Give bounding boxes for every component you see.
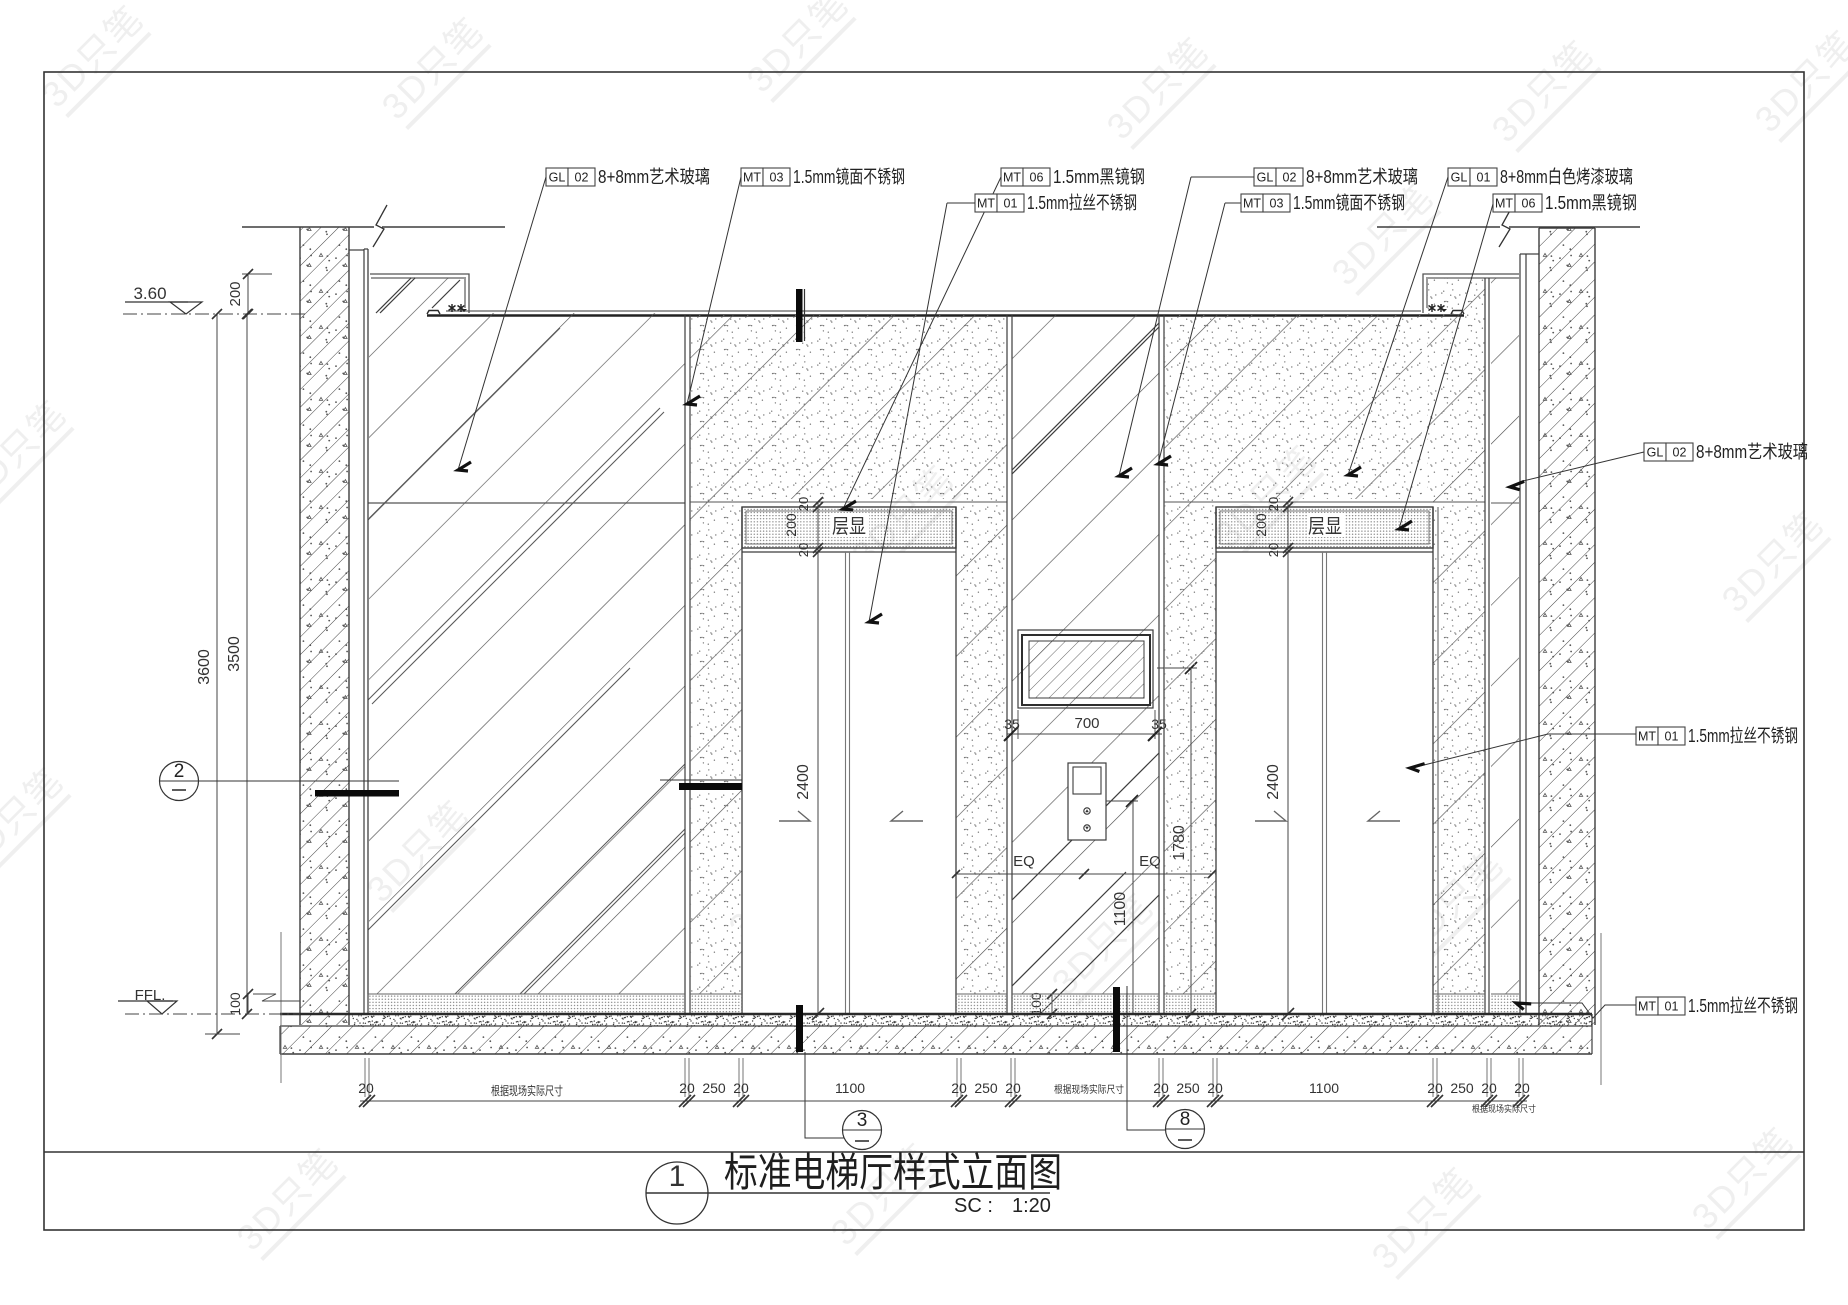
svg-text:3D只笔: 3D只笔 bbox=[1683, 1119, 1801, 1237]
svg-text:3D只笔: 3D只笔 bbox=[33, 0, 151, 115]
svg-text:20: 20 bbox=[1005, 1080, 1021, 1096]
svg-text:MT: MT bbox=[743, 171, 761, 185]
svg-text:3: 3 bbox=[857, 1110, 868, 1131]
svg-text:35: 35 bbox=[1004, 716, 1020, 732]
svg-text:20: 20 bbox=[1266, 543, 1281, 557]
svg-text:根据现场实际尺寸: 根据现场实际尺寸 bbox=[1472, 1103, 1536, 1114]
svg-text:层显: 层显 bbox=[832, 516, 866, 538]
svg-text:2400: 2400 bbox=[1265, 764, 1282, 800]
svg-text:2: 2 bbox=[174, 761, 185, 782]
svg-text:20: 20 bbox=[733, 1080, 749, 1096]
svg-text:250: 250 bbox=[1176, 1080, 1200, 1096]
svg-text:MT: MT bbox=[1638, 730, 1656, 744]
svg-text:3D只笔: 3D只笔 bbox=[373, 9, 491, 127]
svg-text:2400: 2400 bbox=[795, 764, 812, 800]
svg-text:02: 02 bbox=[1283, 171, 1297, 185]
svg-text:01: 01 bbox=[1665, 730, 1679, 744]
svg-text:3.60: 3.60 bbox=[133, 284, 166, 303]
svg-text:1100: 1100 bbox=[1309, 1080, 1339, 1096]
svg-text:1.5mm拉丝不锈钢: 1.5mm拉丝不锈钢 bbox=[1688, 996, 1798, 1016]
svg-text:01: 01 bbox=[1665, 1000, 1679, 1014]
svg-text:1:20: 1:20 bbox=[1012, 1195, 1051, 1217]
svg-text:3D只笔: 3D只笔 bbox=[1483, 32, 1601, 150]
svg-text:GL: GL bbox=[1647, 446, 1664, 460]
svg-text:8: 8 bbox=[1180, 1109, 1191, 1130]
svg-text:8+8mm艺术玻璃: 8+8mm艺术玻璃 bbox=[1306, 167, 1418, 187]
svg-text:1.5mm黑镜钢: 1.5mm黑镜钢 bbox=[1053, 167, 1145, 187]
svg-text:01: 01 bbox=[1477, 171, 1491, 185]
svg-text:200: 200 bbox=[783, 513, 799, 537]
svg-text:GL: GL bbox=[1451, 171, 1468, 185]
svg-text:1.5mm拉丝不锈钢: 1.5mm拉丝不锈钢 bbox=[1027, 193, 1137, 213]
svg-text:06: 06 bbox=[1522, 197, 1536, 211]
svg-text:200: 200 bbox=[1253, 513, 1269, 537]
svg-text:EQ: EQ bbox=[1013, 853, 1035, 870]
svg-text:1.5mm镜面不锈钢: 1.5mm镜面不锈钢 bbox=[1293, 193, 1405, 213]
svg-text:1100: 1100 bbox=[835, 1080, 865, 1096]
svg-text:1.5mm镜面不锈钢: 1.5mm镜面不锈钢 bbox=[793, 167, 905, 187]
svg-text:3D只笔: 3D只笔 bbox=[228, 1140, 346, 1258]
svg-text:GL: GL bbox=[1257, 171, 1274, 185]
svg-text:01: 01 bbox=[1004, 197, 1018, 211]
svg-text:20: 20 bbox=[1481, 1080, 1497, 1096]
svg-text:8+8mm白色烤漆玻璃: 8+8mm白色烤漆玻璃 bbox=[1500, 167, 1633, 187]
svg-text:3D只笔: 3D只笔 bbox=[0, 759, 72, 877]
svg-text:EQ: EQ bbox=[1139, 853, 1161, 870]
svg-text:20: 20 bbox=[1266, 497, 1281, 511]
svg-text:20: 20 bbox=[1153, 1080, 1169, 1096]
svg-text:03: 03 bbox=[1270, 197, 1284, 211]
svg-text:MT: MT bbox=[1243, 197, 1261, 211]
svg-text:MT: MT bbox=[977, 197, 995, 211]
svg-text:20: 20 bbox=[358, 1080, 374, 1096]
svg-text:02: 02 bbox=[1673, 446, 1687, 460]
svg-text:20: 20 bbox=[796, 497, 811, 511]
svg-text:1.5mm拉丝不锈钢: 1.5mm拉丝不锈钢 bbox=[1688, 726, 1798, 746]
svg-text:SC :: SC : bbox=[954, 1195, 993, 1217]
svg-text:1: 1 bbox=[669, 1160, 686, 1193]
svg-text:20: 20 bbox=[796, 543, 811, 557]
svg-text:20: 20 bbox=[1207, 1080, 1223, 1096]
svg-text:3600: 3600 bbox=[196, 649, 213, 685]
svg-text:20: 20 bbox=[679, 1080, 695, 1096]
svg-text:8+8mm艺术玻璃: 8+8mm艺术玻璃 bbox=[1696, 442, 1808, 462]
svg-text:根据现场实际尺寸: 根据现场实际尺寸 bbox=[491, 1083, 563, 1098]
svg-text:03: 03 bbox=[770, 171, 784, 185]
svg-text:MT: MT bbox=[1003, 171, 1021, 185]
svg-text:02: 02 bbox=[575, 171, 589, 185]
svg-text:250: 250 bbox=[1450, 1080, 1474, 1096]
svg-text:1100: 1100 bbox=[1112, 892, 1129, 927]
svg-text:3500: 3500 bbox=[226, 636, 243, 672]
svg-text:MT: MT bbox=[1495, 197, 1513, 211]
svg-text:20: 20 bbox=[1427, 1080, 1443, 1096]
svg-text:层显: 层显 bbox=[1308, 516, 1342, 538]
svg-text:3D只笔: 3D只笔 bbox=[1363, 1159, 1481, 1277]
svg-text:1.5mm黑镜钢: 1.5mm黑镜钢 bbox=[1545, 193, 1637, 213]
svg-text:200: 200 bbox=[227, 281, 244, 306]
svg-text:250: 250 bbox=[702, 1080, 726, 1096]
svg-text:8+8mm艺术玻璃: 8+8mm艺术玻璃 bbox=[598, 167, 710, 187]
svg-text:06: 06 bbox=[1030, 171, 1044, 185]
svg-text:100: 100 bbox=[227, 992, 243, 1016]
svg-text:标准电梯厅样式立面图: 标准电梯厅样式立面图 bbox=[724, 1151, 1062, 1195]
svg-text:250: 250 bbox=[974, 1080, 998, 1096]
svg-text:20: 20 bbox=[951, 1080, 967, 1096]
svg-text:3D只笔: 3D只笔 bbox=[1713, 502, 1831, 620]
svg-text:根据现场实际尺寸: 根据现场实际尺寸 bbox=[1054, 1083, 1124, 1096]
svg-text:MT: MT bbox=[1638, 1000, 1656, 1014]
svg-text:3D只笔: 3D只笔 bbox=[738, 0, 856, 100]
svg-text:700: 700 bbox=[1074, 715, 1099, 732]
svg-text:20: 20 bbox=[1514, 1080, 1530, 1096]
svg-text:GL: GL bbox=[549, 171, 566, 185]
svg-text:3D只笔: 3D只笔 bbox=[1098, 29, 1216, 147]
